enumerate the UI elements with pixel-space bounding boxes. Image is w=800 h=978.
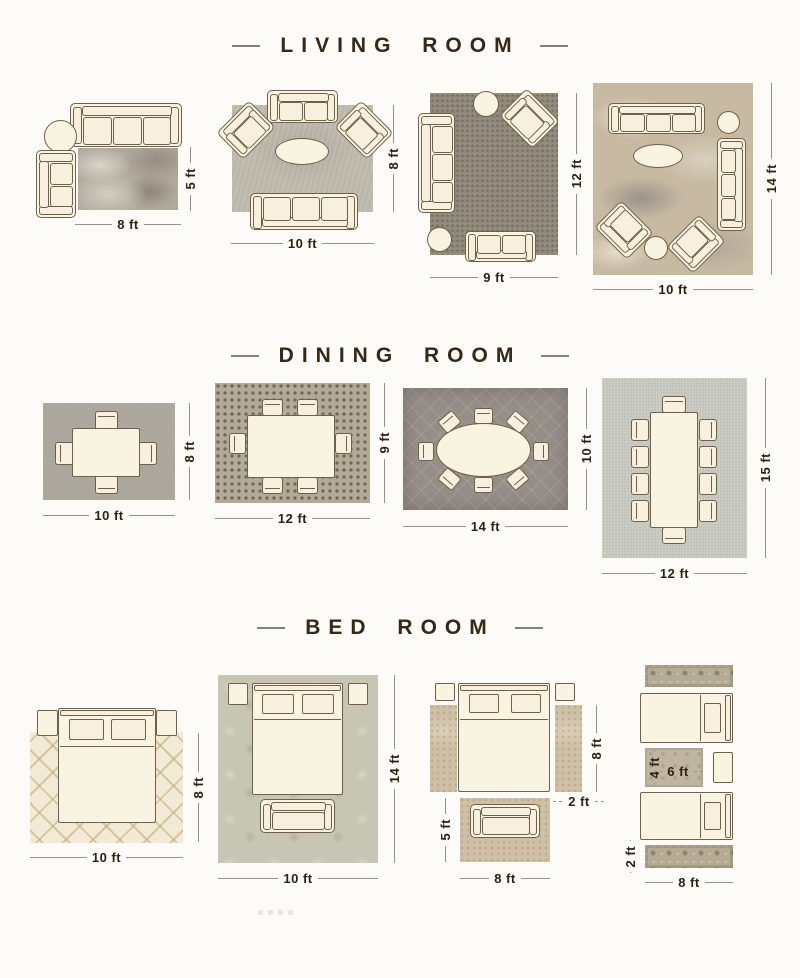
bed xyxy=(58,708,156,823)
dimension-label: 10 ft xyxy=(283,871,312,886)
loveseat xyxy=(465,231,536,262)
twin-bed xyxy=(640,792,733,840)
dining-chair xyxy=(631,419,649,441)
width-dimension: 9 ft xyxy=(430,270,558,285)
dining-chair xyxy=(95,475,118,494)
width-dimension: 10 ft xyxy=(231,236,374,251)
sofa-cushion xyxy=(432,182,453,203)
runner-rug-2x8 xyxy=(430,705,457,792)
sofa-back xyxy=(278,93,329,102)
dimension-label: 8 ft xyxy=(678,875,700,890)
nightstand xyxy=(348,683,368,705)
dimension-label: 14 ft xyxy=(471,519,500,534)
twin-bed xyxy=(640,693,733,743)
oval-coffee-table xyxy=(275,138,329,165)
sofa-cushion xyxy=(272,812,325,830)
nightstand xyxy=(713,752,733,783)
sofa-arm xyxy=(611,106,619,132)
sofa-cushion xyxy=(83,117,112,145)
dimension-label: 12 ft xyxy=(660,566,689,581)
dimension-label: 8 ft xyxy=(191,777,206,799)
dimension-label: 5 ft xyxy=(183,168,198,190)
width-dimension: 12 ft xyxy=(215,511,370,526)
bed xyxy=(252,683,343,795)
dimension-label: 15 ft xyxy=(758,453,773,482)
dimension-label: 8 ft xyxy=(182,441,197,463)
sofa-arm xyxy=(270,94,278,121)
dining-chair xyxy=(699,446,717,468)
dimension-label: 2 ft xyxy=(623,846,638,868)
dimension-label: 12 ft xyxy=(569,159,584,188)
dining-chair xyxy=(297,399,318,416)
runner-width-dimension: 2 ft xyxy=(553,794,605,809)
dining-room-layout-12x15: 12 ft 15 ft xyxy=(595,373,780,588)
runner-rug-8x2 xyxy=(645,845,733,868)
sofa-cushion xyxy=(721,150,736,173)
nightstand xyxy=(37,710,58,736)
watermark xyxy=(258,910,293,915)
oval-dining-table xyxy=(436,423,531,477)
dimension-label: 9 ft xyxy=(483,270,505,285)
headboard xyxy=(60,710,154,716)
headboard xyxy=(254,685,341,691)
dimension-label: 9 ft xyxy=(377,432,392,454)
sofa-three-seat xyxy=(250,193,358,230)
width-dimension: 14 ft xyxy=(403,519,568,534)
pillow xyxy=(511,694,541,713)
sofa-cushion xyxy=(432,154,453,181)
height-dimension: 14 ft xyxy=(763,83,779,275)
oval-coffee-table xyxy=(633,144,683,168)
sofa-arm xyxy=(253,196,262,229)
dimension-label: 8 ft xyxy=(386,148,401,170)
dining-room-layout-10x8: 10 ft 8 ft xyxy=(35,395,200,530)
dimension-label: 10 ft xyxy=(288,236,317,251)
sofa-cushion xyxy=(721,198,736,220)
dining-chair xyxy=(262,477,283,494)
round-side-table xyxy=(473,91,499,117)
round-side-table xyxy=(717,111,740,134)
sofa-cushion xyxy=(321,197,348,221)
height-dimension: 15 ft xyxy=(757,378,773,558)
sofa-cushion xyxy=(292,197,320,221)
dining-chair xyxy=(631,500,649,522)
dimension-label: 10 ft xyxy=(579,434,594,463)
sofa-cushion xyxy=(279,102,303,121)
width-dimension: 10 ft xyxy=(593,282,753,297)
title-dash xyxy=(540,45,568,47)
sofa-back xyxy=(481,807,531,816)
width-dimension: 12 ft xyxy=(602,566,747,581)
sofa-arm xyxy=(468,234,476,261)
dimension-label: 5 ft xyxy=(438,819,453,841)
dining-chair xyxy=(297,477,318,494)
dimension-label: 8 ft xyxy=(589,738,604,760)
dining-chair xyxy=(262,399,283,416)
title-dash xyxy=(515,627,543,629)
nightstand xyxy=(156,710,177,736)
sofa-cushion xyxy=(721,174,736,197)
title-dash xyxy=(257,627,285,629)
height-dimension: 8 ft xyxy=(181,403,197,500)
sofa-cushion xyxy=(482,817,530,835)
dimension-label: 12 ft xyxy=(278,511,307,526)
section-title-text: DINING ROOM xyxy=(279,344,522,368)
height-dimension: 14 ft xyxy=(386,675,402,863)
dining-chair xyxy=(474,408,493,424)
living-room-layout-8x5: 8 ft 5 ft xyxy=(30,95,230,245)
bed xyxy=(458,683,550,792)
pillow xyxy=(469,694,499,713)
nightstand xyxy=(228,683,248,705)
blanket-line xyxy=(700,695,701,741)
runner-length-dimension: 8 ft xyxy=(645,875,733,890)
living-room-layout-10x14: 10 ft 14 ft xyxy=(593,78,788,298)
dimension-label: 10 ft xyxy=(94,508,123,523)
dining-chair xyxy=(631,446,649,468)
dining-chair xyxy=(138,442,157,465)
width-dimension: 10 ft xyxy=(218,871,378,886)
pillow xyxy=(69,719,104,740)
sofa-back xyxy=(39,161,49,208)
section-title-bed-room: BED ROOM xyxy=(0,616,800,640)
title-dash xyxy=(232,45,260,47)
dining-chair xyxy=(662,527,686,544)
width-dimension: 8 ft xyxy=(75,217,181,232)
sofa-cushion xyxy=(143,117,171,145)
sofa-cushion xyxy=(50,163,73,185)
height-dimension: 8 ft xyxy=(190,733,206,842)
pillow xyxy=(262,694,294,714)
bed-room-layout-twin-beds: 4 ft 6 ft 2 ft 8 ft xyxy=(622,660,787,895)
dining-chair xyxy=(474,477,493,493)
dimension-label: 10 ft xyxy=(658,282,687,297)
round-side-table xyxy=(427,227,452,252)
headboard xyxy=(725,695,731,741)
dining-chair xyxy=(533,442,549,461)
blanket-line xyxy=(254,719,341,720)
dining-chair xyxy=(699,473,717,495)
pillow xyxy=(704,802,721,830)
pillow xyxy=(302,694,334,714)
foot-rug-height-dimension: 5 ft xyxy=(437,798,453,862)
dimension-label: 8 ft xyxy=(494,871,516,886)
bed-room-layout-runners: 8 ft 2 ft 5 ft 8 ft xyxy=(425,675,615,890)
dimension-label: 8 ft xyxy=(117,217,139,232)
sofa-arm xyxy=(263,804,271,830)
sofa-cushion xyxy=(263,197,291,221)
dining-chair xyxy=(699,419,717,441)
pillow xyxy=(704,703,721,733)
runner-rug-8x2 xyxy=(645,665,733,687)
blanket-line xyxy=(460,719,548,720)
dining-chair xyxy=(229,433,246,454)
height-dimension: 9 ft xyxy=(376,383,392,503)
nightstand xyxy=(555,683,575,701)
sofa-back xyxy=(619,106,696,114)
height-dimension: 8 ft xyxy=(385,105,401,212)
dimension-label: 14 ft xyxy=(764,164,779,193)
living-room-layout-9x12: 9 ft 12 ft xyxy=(410,85,590,285)
dimension-label: 10 ft xyxy=(92,850,121,865)
dining-chair xyxy=(631,473,649,495)
sofa-cushion xyxy=(672,114,696,132)
sofa-cushion xyxy=(646,114,671,132)
dimension-label: 6 ft xyxy=(667,764,689,779)
bed-room-layout-10x14: 10 ft 14 ft xyxy=(210,668,405,888)
runner-rug-2x8 xyxy=(555,705,582,792)
headboard xyxy=(460,685,548,691)
rug-size-guide-infographic: LIVING ROOM DINING ROOM BED ROOM xyxy=(0,0,800,978)
width-dimension: 10 ft xyxy=(43,508,175,523)
sofa-cushion xyxy=(304,102,328,121)
dining-room-layout-12x9: 12 ft 9 ft xyxy=(210,378,390,528)
sofa-cushion xyxy=(432,126,453,153)
headboard xyxy=(725,794,731,838)
sofa-cushion xyxy=(50,186,73,207)
dining-table xyxy=(247,415,335,478)
sofa-three-seat xyxy=(608,103,705,134)
height-dimension: 12 ft xyxy=(568,93,584,255)
runner-width-dimension: 2 ft xyxy=(622,840,638,873)
dining-chair xyxy=(335,433,352,454)
height-dimension: 5 ft xyxy=(182,147,198,211)
bed-room-layout-10x8: 10 ft 8 ft xyxy=(25,700,210,870)
section-title-dining-room: DINING ROOM xyxy=(0,344,800,368)
sofa-back xyxy=(421,124,431,202)
blanket-line xyxy=(60,746,154,747)
blanket-line xyxy=(700,794,701,838)
runner-length-dimension: 8 ft xyxy=(588,705,604,792)
section-title-text: BED ROOM xyxy=(305,616,495,640)
round-side-table xyxy=(644,236,668,260)
foot-rug-width-dimension: 8 ft xyxy=(460,871,550,886)
dimension-label: 14 ft xyxy=(387,754,402,783)
sofa-cushion xyxy=(620,114,645,132)
dining-chair xyxy=(418,442,434,461)
dining-room-layout-14x10: 14 ft 10 ft xyxy=(400,383,595,533)
width-dimension: 10 ft xyxy=(30,850,183,865)
dining-chair xyxy=(662,396,686,413)
sofa-arm xyxy=(473,809,481,835)
round-side-table xyxy=(44,120,77,153)
sofa-three-seat-vertical xyxy=(717,138,746,231)
bench-loveseat xyxy=(260,799,335,833)
sofa-cushion xyxy=(502,235,526,254)
dining-table xyxy=(650,412,698,528)
rug-8x5 xyxy=(78,148,178,210)
title-dash xyxy=(541,355,569,357)
bedside-rug-width-dimension: 6 ft xyxy=(654,764,702,779)
pillow xyxy=(111,719,146,740)
sofa-cushion xyxy=(477,235,501,254)
section-title-text: LIVING ROOM xyxy=(280,34,519,58)
dining-table xyxy=(72,428,140,477)
title-dash xyxy=(231,355,259,357)
section-title-living-room: LIVING ROOM xyxy=(0,34,800,58)
sofa-three-seat xyxy=(70,103,182,147)
sofa-two-seat-vertical xyxy=(36,150,76,218)
sofa-three-seat-vertical xyxy=(418,113,455,213)
loveseat xyxy=(267,90,338,123)
dimension-label: 2 ft xyxy=(568,794,590,809)
living-room-layout-10x8: 10 ft 8 ft xyxy=(215,85,410,250)
sofa-back xyxy=(82,106,172,116)
sofa-cushion xyxy=(113,117,142,145)
sofa-back xyxy=(271,802,326,811)
nightstand xyxy=(435,683,455,701)
height-dimension: 10 ft xyxy=(578,388,594,510)
dining-chair xyxy=(699,500,717,522)
bench-loveseat xyxy=(470,804,540,838)
